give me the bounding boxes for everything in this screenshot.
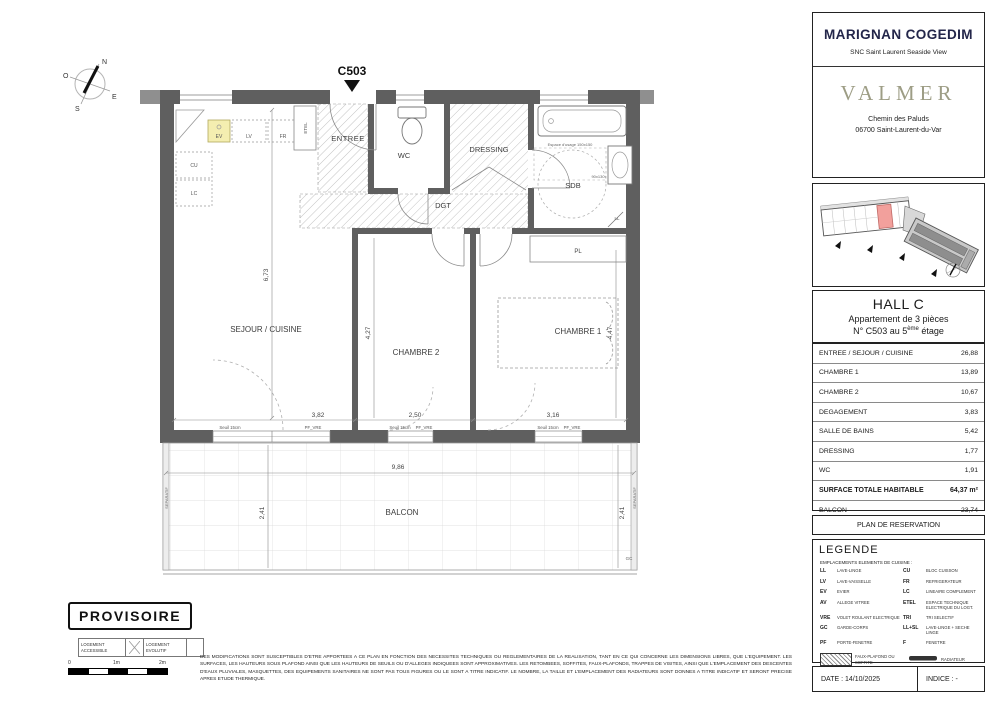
kitchen-fr-label: FR <box>280 134 287 140</box>
legend-abbr: LV <box>820 579 837 585</box>
pl-label: PL <box>574 249 582 255</box>
separatif-right-label: SEPARATIF <box>632 487 637 509</box>
provisoire-stamp: PROVISOIRE <box>68 602 192 630</box>
legend-grid: LLLAVE-LINGECUBLOC CUISSON LVLAVE-VAISSE… <box>813 568 984 646</box>
developer-logo-block: MARIGNAN COGEDIM SNC Saint Laurent Seasi… <box>813 13 984 67</box>
brand-box: MARIGNAN COGEDIM SNC Saint Laurent Seasi… <box>812 12 985 178</box>
separatif-left-label: SEPARATIF <box>164 487 169 509</box>
scale-2m: 2m <box>159 660 166 666</box>
compass-s: S <box>75 106 80 113</box>
dim-ch2-w: 2,50 <box>409 412 422 419</box>
legend-desc: EVIER <box>837 589 903 594</box>
scale-segment <box>147 669 167 674</box>
legend-abbr: EV <box>820 589 837 595</box>
legend-desc: FENETRE <box>926 640 980 645</box>
accessible-checkbox <box>126 639 144 656</box>
compass-o: O <box>63 73 69 80</box>
accessibility-table: LOGEMENT ACCESSIBLE LOGEMENT EVOLUTIF <box>78 638 204 657</box>
legend-abbr: VRE <box>820 615 837 621</box>
dim-balcon-w: 9,86 <box>392 464 405 471</box>
brand-cogedim: COGEDIM <box>906 27 973 42</box>
legend-desc: LAVE-VAISSELLE <box>837 579 903 584</box>
area-label: DEGAGEMENT <box>819 409 867 416</box>
dim-balcon-d-right: 2,41 <box>619 506 626 519</box>
site-plan-thumbnail <box>813 184 984 286</box>
logement-accessible-label: LOGEMENT ACCESSIBLE <box>79 639 126 656</box>
logement-evolutif-label: LOGEMENT EVOLUTIF <box>144 639 187 656</box>
area-row: CHAMBRE 210,67 <box>813 383 984 403</box>
area-row: SALLE DE BAINS5,42 <box>813 422 984 442</box>
legend-subtitle: EMPLACEMENTS ELEMENTS DE CUISINE : <box>813 558 984 568</box>
area-value: 26,88 <box>961 350 978 357</box>
pl-closet: PL LL <box>530 212 626 262</box>
x-mark-icon <box>129 641 140 654</box>
area-total-row: SURFACE TOTALE HABITABLE64,37 m² <box>813 481 984 501</box>
area-value: 13,89 <box>961 369 978 376</box>
unit-floor-sup: ème <box>907 326 919 332</box>
area-label: CHAMBRE 2 <box>819 389 859 396</box>
site-plan-box <box>812 183 985 287</box>
pfvre-label-3: PF_VRE <box>564 425 581 430</box>
legend-abbr: CU <box>903 568 926 574</box>
area-row: CHAMBRE 113,89 <box>813 364 984 384</box>
area-row: WC1,91 <box>813 462 984 482</box>
legend-abbr: F <box>903 640 926 646</box>
area-label: WC <box>819 467 830 474</box>
room-label-wc: WC <box>398 151 411 160</box>
gc-label: GC <box>626 556 634 561</box>
scale-segment <box>128 669 148 674</box>
scale-0: 0 <box>68 660 71 666</box>
legend-desc: REFRIGERATEUR <box>926 579 980 584</box>
legend-desc: LAVE-LINGE + SECHE LINGE <box>926 625 980 636</box>
area-value: 1,77 <box>965 448 978 455</box>
room-label-sdb: SDB <box>565 181 580 190</box>
dim-ch1-w: 3,16 <box>547 412 560 419</box>
legend-desc: TRI SELECTIF <box>926 615 980 620</box>
legend-abbr: LL <box>820 568 837 574</box>
kitchen-lc-label: LC <box>191 191 198 197</box>
seuil-label-1: Seuil 15cm <box>219 425 241 430</box>
legend-abbr: LL+SL <box>903 625 926 631</box>
scale-bar: 0 1m 2m <box>68 660 168 675</box>
legend-desc: PORTE-FENETRE <box>837 640 903 645</box>
area-value: 10,67 <box>961 389 978 396</box>
legend-desc: LINEAIRE COMPLEMENT <box>926 589 980 594</box>
area-label: CHAMBRE 1 <box>819 369 859 376</box>
dim-sejour-h: 6,73 <box>263 268 270 281</box>
scale-bar-segments <box>68 668 168 675</box>
pfvre-label-1: PF_VRE <box>305 425 322 430</box>
compass-rose: N O E S <box>63 59 117 113</box>
unit-number-label: C503 <box>338 64 367 78</box>
ll-label: LL <box>614 216 620 221</box>
legend-radiateur: RADIATEUR <box>908 655 980 664</box>
project-name: VALMER <box>817 81 980 106</box>
legend-abbr: LC <box>903 589 926 595</box>
area-value: 5,42 <box>965 428 978 435</box>
entrance-arrow-icon <box>344 80 360 92</box>
legend-faux-plafond: FAUX-PLAFOND OU SOFFITE <box>820 653 908 666</box>
date-indice-box: DATE : 14/10/2025 INDICE : - <box>812 666 985 692</box>
total-label: SURFACE TOTALE HABITABLE <box>819 487 924 494</box>
legend-abbr: PF <box>820 640 837 646</box>
scale-labels: 0 1m 2m <box>68 660 168 667</box>
dim-ch1-h: 4,47 <box>607 326 614 339</box>
compass-e: E <box>112 94 117 101</box>
legend-desc: ESPACE TECHNIQUE ELECTRIQUE DU LOGT. <box>926 600 980 611</box>
dim-balcon-d-left: 2,41 <box>259 506 266 519</box>
dim-ch2-h: 4,27 <box>365 326 372 339</box>
floor-plan-sheet: N O E S C503 <box>0 0 1000 706</box>
brand-marignan: MARIGNAN <box>824 27 901 42</box>
address-line-1: Chemin des Paluds <box>817 115 980 126</box>
unit-type: Appartement de 3 pièces <box>813 314 984 324</box>
legend-abbr: GC <box>820 625 837 631</box>
area-row: DEGAGEMENT3,83 <box>813 403 984 423</box>
area-value: 3,83 <box>965 409 978 416</box>
unit-summary-box: HALL C Appartement de 3 pièces N° C503 a… <box>812 290 985 343</box>
area-row: DRESSING1,77 <box>813 442 984 462</box>
project-address: Chemin des Paluds 06700 Saint-Laurent-du… <box>817 115 980 136</box>
area-label: ENTREE / SEJOUR / CUISINE <box>819 350 913 357</box>
legend-desc: FAUX-PLAFOND OU SOFFITE <box>855 654 908 665</box>
unit-number-prefix: N° C503 au 5 <box>853 326 907 336</box>
usage-space-label: Espace d'usage 150x150 <box>548 142 594 147</box>
kitchen-ev-label: EV <box>216 134 223 140</box>
area-label: SALLE DE BAINS <box>819 428 874 435</box>
dim-sejour-w: 3,82 <box>312 412 325 419</box>
legend-abbr: ETEL <box>903 600 926 606</box>
room-label-balcon: BALCON <box>386 508 419 517</box>
scale-segment <box>89 669 109 674</box>
compass-n: N <box>102 59 107 66</box>
reservation-plan-banner: PLAN DE RESERVATION <box>812 515 985 535</box>
balcony-label: BALCON <box>819 507 847 514</box>
seuil-label-3: Seuil 15cm <box>537 425 559 430</box>
unit-number-floor: N° C503 au 5ème étage <box>813 326 984 336</box>
etel-closet: ETEL <box>294 106 316 150</box>
legend-desc: LAVE-LINGE <box>837 568 903 573</box>
kitchen-lv-label: LV <box>246 134 252 140</box>
unit-number-suffix: étage <box>919 326 944 336</box>
scale-1m: 1m <box>113 660 120 666</box>
legend-desc: RADIATEUR <box>941 657 968 662</box>
room-label-dgt: DGT <box>435 201 451 210</box>
room-label-entree: ENTREE <box>331 134 364 143</box>
date-field: DATE : 14/10/2025 <box>813 667 918 691</box>
snc-subtitle: SNC Saint Laurent Seaside View <box>819 49 978 56</box>
legend-desc: ALLEGE VITREE <box>837 600 903 605</box>
area-row: ENTREE / SEJOUR / CUISINE26,88 <box>813 344 984 364</box>
legend-desc: VOLET ROULANT ELECTRIQUE <box>837 615 903 620</box>
indice-field: INDICE : - <box>918 667 958 691</box>
areas-table-box: ENTREE / SEJOUR / CUISINE26,88 CHAMBRE 1… <box>812 343 985 511</box>
room-label-chambre2: CHAMBRE 2 <box>393 348 440 357</box>
legend-desc: GARDE-CORPS <box>837 625 903 630</box>
scale-segment <box>69 669 89 674</box>
kitchen-cu-label: CU <box>190 163 198 169</box>
room-label-dressing: DRESSING <box>469 145 508 154</box>
legal-disclaimer: DES MODIFICATIONS SONT SUSCEPTIBLES D'ET… <box>200 654 792 684</box>
kitchen-fittings: EV LV FR CU LC <box>176 120 298 206</box>
area-value: 1,91 <box>965 467 978 474</box>
usage-dims-label: 90x130 <box>591 174 605 179</box>
hall-title: HALL C <box>813 296 984 312</box>
area-label: DRESSING <box>819 448 855 455</box>
balcony-value: 23,74 <box>961 507 978 514</box>
room-label-sejour: SEJOUR / CUISINE <box>230 325 302 334</box>
project-logo-block: VALMER Chemin des Paluds 06700 Saint-Lau… <box>813 67 984 148</box>
highlighted-unit <box>877 204 893 228</box>
legend-title: LEGENDE <box>813 540 984 558</box>
legend-abbr: TRI <box>903 615 926 621</box>
room-label-chambre1: CHAMBRE 1 <box>555 327 602 336</box>
legend-abbr: AV <box>820 600 837 606</box>
legend-box: LEGENDE EMPLACEMENTS ELEMENTS DE CUISINE… <box>812 539 985 663</box>
pfvre-label-2: PF_VRE <box>416 425 433 430</box>
address-line-2: 06700 Saint-Laurent-du-Var <box>817 126 980 137</box>
legend-abbr: FR <box>903 579 926 585</box>
hatch-swatch-icon <box>820 653 852 666</box>
legend-desc: BLOC CUISSON <box>926 568 980 573</box>
radiator-icon <box>908 655 938 664</box>
seuil-label-2: Seuil 15cm <box>389 425 411 430</box>
floor-plan-drawing: N O E S C503 <box>0 0 810 706</box>
etel-label: ETEL <box>303 122 308 134</box>
developer-logo: MARIGNAN COGEDIM <box>819 27 978 42</box>
total-value: 64,37 m² <box>950 487 978 494</box>
scale-segment <box>108 669 128 674</box>
